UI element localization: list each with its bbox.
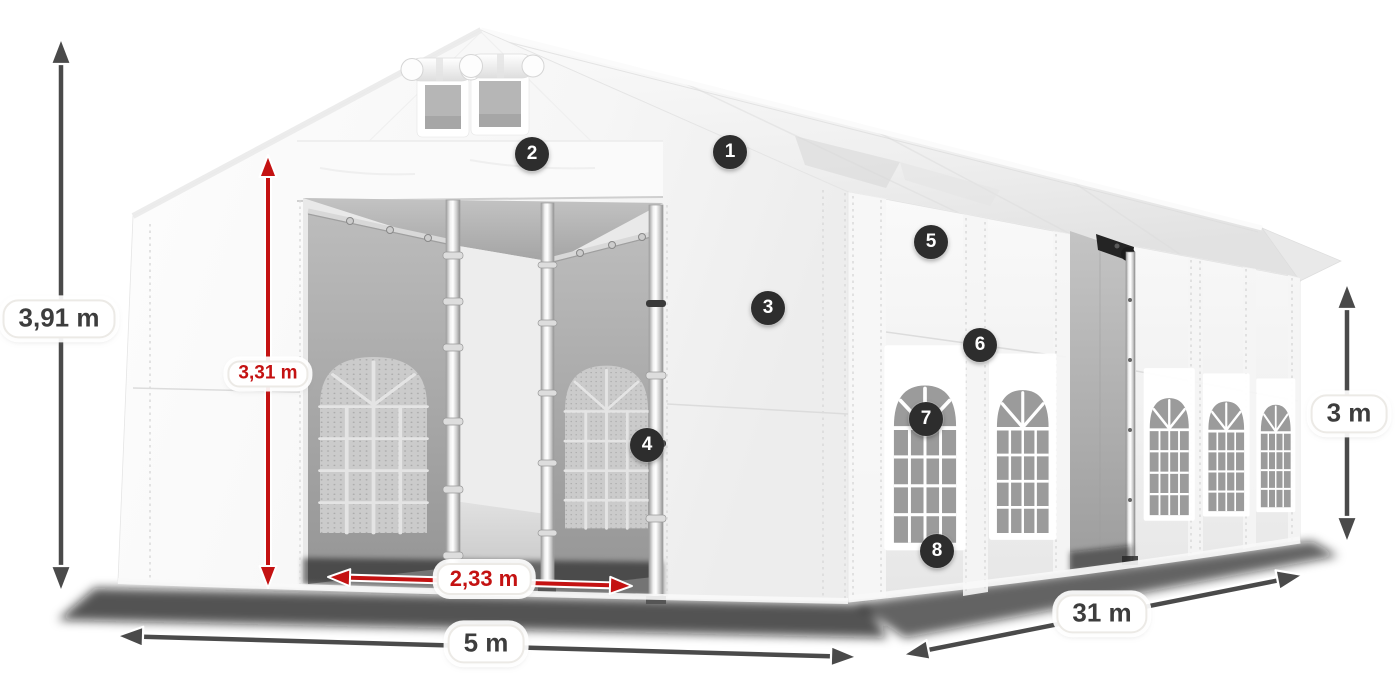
callout-badge-6: 6 — [963, 328, 997, 362]
callout-badge-8: 8 — [920, 534, 954, 568]
side-door-opening — [1070, 231, 1138, 572]
door-pole-right — [649, 205, 663, 599]
callout-badge-4: 4 — [630, 428, 664, 462]
side-height-label: 3 m — [1311, 394, 1388, 433]
total-height-label: 3,91 m — [3, 299, 116, 338]
interior-window-left — [320, 357, 427, 533]
length-label: 31 m — [1056, 594, 1147, 633]
side-window-4 — [1203, 373, 1250, 516]
interior-door-panel-left — [308, 211, 447, 584]
side-window-5 — [1256, 379, 1295, 513]
front-entrance — [303, 198, 666, 604]
callout-badge-3: 3 — [751, 291, 785, 325]
front-width-label: 5 m — [448, 624, 525, 663]
callout-badge-7: 7 — [909, 402, 943, 436]
callout-badge-5: 5 — [914, 225, 948, 259]
callout-badge-2: 2 — [515, 137, 549, 171]
side-window-1 — [884, 345, 965, 550]
inner-height-label: 3,31 m — [227, 361, 308, 388]
side-window-3 — [1144, 368, 1195, 521]
tent-dimension-diagram: 1 2 3 4 5 6 7 8 3,91 m 3,31 m 2,33 m 5 m… — [0, 0, 1400, 700]
gable-vents — [401, 54, 544, 137]
callout-badge-1: 1 — [713, 135, 747, 169]
entrance-header-band — [297, 141, 663, 201]
side-window-2 — [989, 354, 1057, 540]
entrance-width-label: 2,33 m — [437, 563, 532, 595]
interior-door-panel-right — [553, 231, 663, 588]
tent-illustration — [0, 0, 1400, 700]
